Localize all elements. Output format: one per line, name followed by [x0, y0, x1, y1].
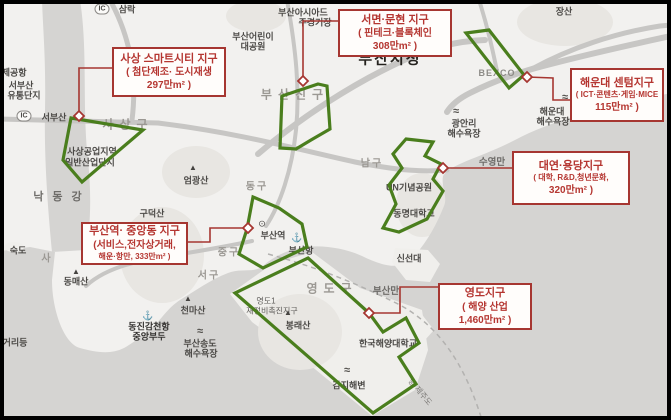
leader-line-jungang [188, 228, 244, 242]
zone-marker-seomyeon [298, 76, 308, 86]
leader-line-yeongdo [369, 287, 438, 313]
zone-polygon-centum [466, 30, 524, 88]
leader-line-sasang [79, 68, 112, 116]
zone-marker-jungang [243, 223, 253, 233]
annotation-layer [4, 4, 667, 416]
zone-polygon-busanjin [280, 84, 330, 149]
zone-polygon-yeongdo [235, 258, 419, 413]
leader-line-seomyeon [303, 21, 338, 81]
zone-polygon-daeyeon [383, 139, 443, 232]
map-figure-frame: 삼락부산아시아드주경기장장산부산어린이대공원부산시청부산진구국제공항서부산유통단… [0, 0, 671, 420]
busan-map-canvas: 삼락부산아시아드주경기장장산부산어린이대공원부산시청부산진구국제공항서부산유통단… [4, 4, 667, 416]
leader-line-haeundae [527, 77, 570, 100]
zone-polygon-sasang [63, 118, 143, 182]
